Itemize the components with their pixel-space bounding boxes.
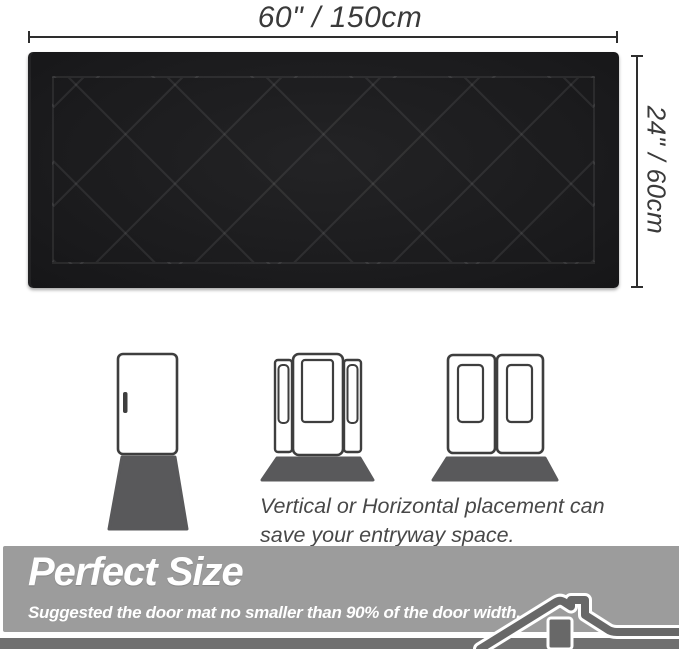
right-sidelite-window: [348, 365, 358, 423]
door-window: [302, 360, 333, 422]
right-door-window: [507, 365, 532, 422]
banner-title: Perfect Size: [28, 550, 243, 595]
banner-subtitle: Suggested the door mat no smaller than 9…: [28, 603, 521, 623]
double-door-horizontal-mat-illustration: [425, 348, 565, 490]
left-sidelite-window: [279, 365, 289, 423]
door-handle: [123, 392, 128, 413]
house-roof-outline: [480, 600, 679, 649]
caption-line-1: Vertical or Horizontal placement can: [260, 492, 605, 521]
horizontal-mat-shape: [262, 458, 373, 480]
sidelite-door-horizontal-mat-illustration: [255, 348, 380, 490]
single-door-vertical-mat-illustration: [90, 348, 200, 535]
dimension-endcap: [631, 286, 643, 288]
width-dimension-label: 60" / 150cm: [180, 1, 500, 35]
product-size-infographic: 60" / 150cm 24" / 60cm: [0, 0, 679, 649]
height-dimension-label: 24" / 60cm: [641, 106, 672, 234]
dimension-endcap: [616, 31, 618, 43]
width-dimension-line: [28, 31, 618, 43]
vertical-mat-shape: [109, 457, 187, 529]
house-roof-icon: [468, 578, 679, 649]
horizontal-mat-shape: [433, 458, 557, 480]
left-door-window: [458, 365, 483, 422]
placement-caption: Vertical or Horizontal placement can sav…: [260, 492, 605, 550]
door-mat-image: [28, 52, 619, 288]
mat-diamond-pattern: [52, 76, 595, 264]
house-door: [548, 618, 572, 649]
